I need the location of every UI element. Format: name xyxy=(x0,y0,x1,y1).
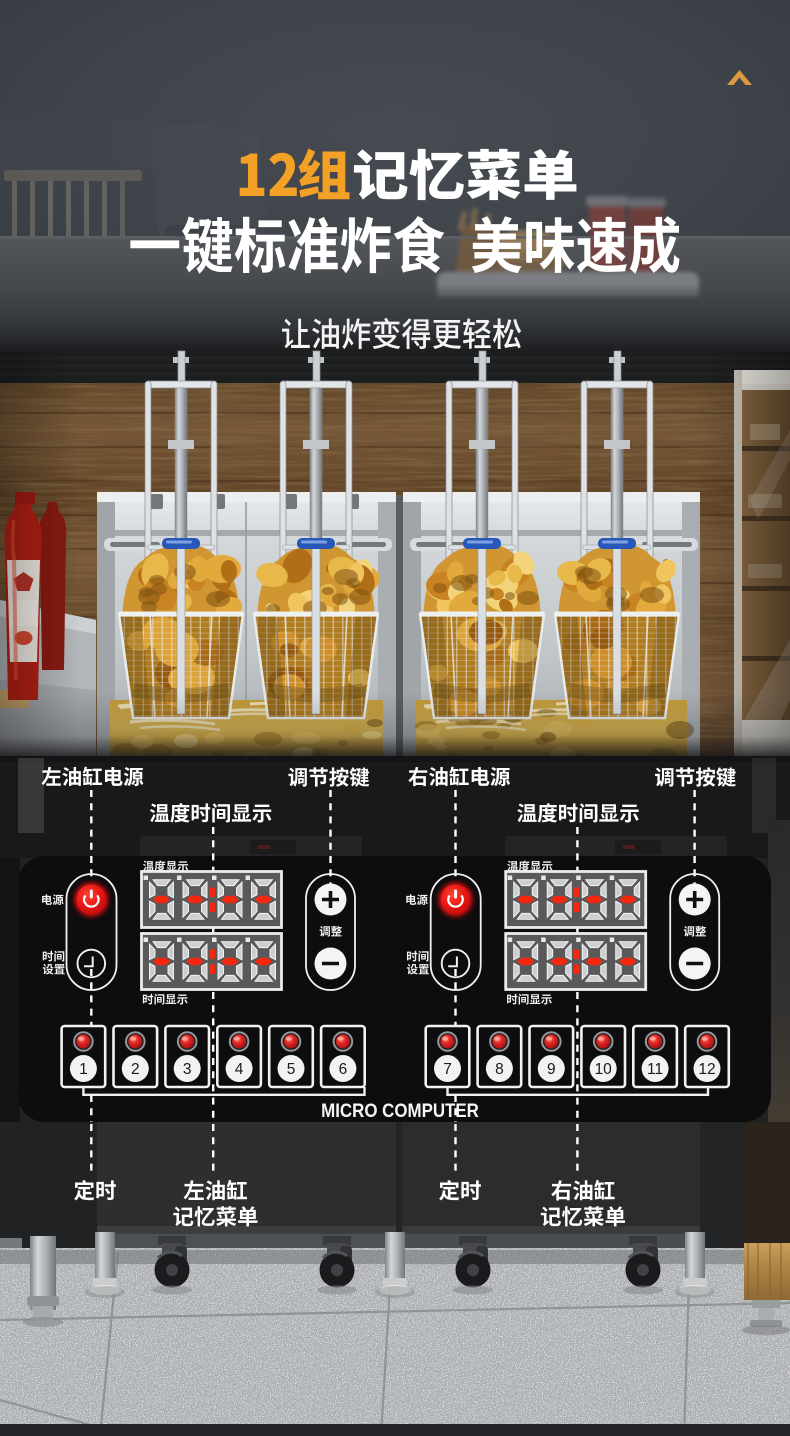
svg-text:5: 5 xyxy=(287,1061,296,1078)
svg-text:11: 11 xyxy=(647,1061,663,1078)
svg-text:4: 4 xyxy=(235,1061,244,1078)
svg-text:3: 3 xyxy=(183,1061,192,1078)
svg-text:6: 6 xyxy=(339,1061,348,1078)
svg-text:8: 8 xyxy=(495,1061,504,1078)
svg-text:7: 7 xyxy=(443,1061,452,1078)
svg-text:MICRO COMPUTER: MICRO COMPUTER xyxy=(321,1100,479,1121)
svg-text:1: 1 xyxy=(79,1061,88,1078)
svg-text:2: 2 xyxy=(131,1061,140,1078)
svg-text:10: 10 xyxy=(595,1061,613,1078)
svg-text:9: 9 xyxy=(547,1061,556,1078)
svg-text:12: 12 xyxy=(698,1061,715,1078)
